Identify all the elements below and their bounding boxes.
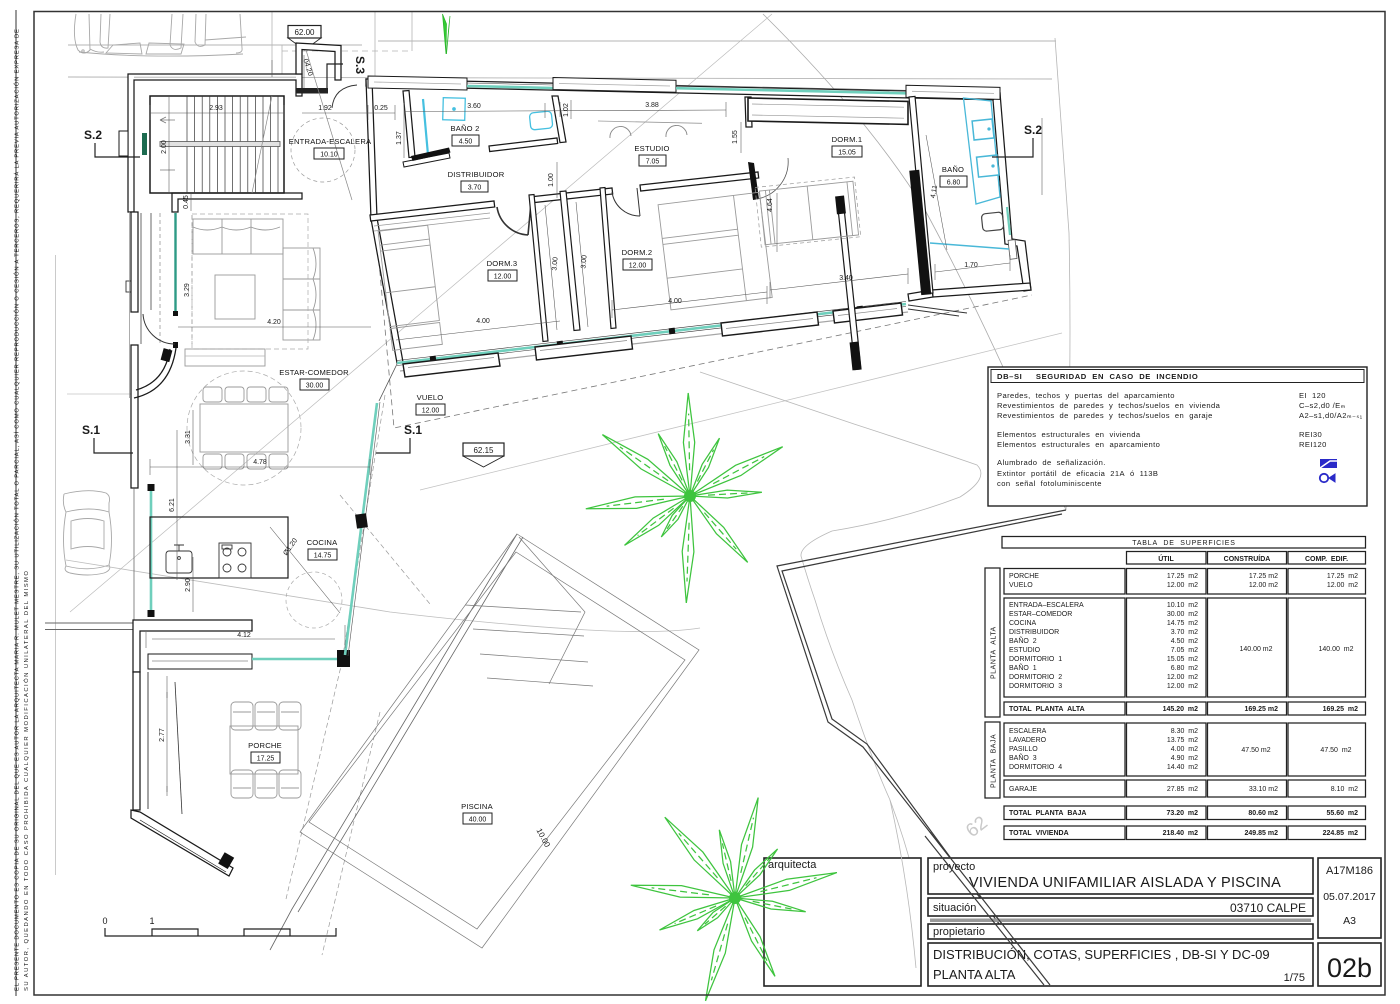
svg-text:ENTRADA–ESCALERA: ENTRADA–ESCALERA [1009,602,1084,609]
svg-text:A2–s1,d0/A2ₘ₋ₛ₁: A2–s1,d0/A2ₘ₋ₛ₁ [1299,411,1363,420]
svg-text:14.75 m2: 14.75 m2 [1167,620,1198,627]
svg-text:3.00: 3.00 [580,255,588,269]
svg-text:S.1: S.1 [404,423,422,437]
svg-text:VIVIENDA UNIFAMILIAR AISLADA Y: VIVIENDA UNIFAMILIAR AISLADA Y PISCINA [969,875,1281,891]
svg-text:1.92: 1.92 [318,105,332,112]
svg-text:17.25 m2: 17.25 m2 [1249,573,1278,580]
svg-text:0.25: 0.25 [374,105,388,112]
svg-text:169.25 m2: 169.25 m2 [1245,706,1279,713]
svg-text:140.00 m2: 140.00 m2 [1318,646,1353,653]
svg-text:COCINA: COCINA [1009,620,1037,627]
svg-text:218.40 m2: 218.40 m2 [1163,830,1199,837]
svg-text:30.00: 30.00 [306,383,324,390]
svg-text:03710 CALPE: 03710 CALPE [1230,901,1306,915]
svg-text:arquitecta: arquitecta [768,859,817,871]
svg-text:17.25 m2: 17.25 m2 [1167,573,1198,580]
svg-text:2.77: 2.77 [159,728,166,742]
svg-text:1.70: 1.70 [964,262,978,269]
svg-text:12.00 m2: 12.00 m2 [1167,582,1198,589]
svg-text:DORM.2: DORM.2 [622,248,653,257]
svg-text:Elementos estructurales en: Elementos estructurales en vivienda [997,430,1141,439]
svg-text:BAÑO 2: BAÑO 2 [450,124,479,133]
svg-text:CONSTRUÍDA: CONSTRUÍDA [1224,554,1271,563]
svg-text:80.60 m2: 80.60 m2 [1248,810,1278,817]
svg-text:6.21: 6.21 [169,498,176,512]
svg-text:4.00 m2: 4.00 m2 [1171,746,1198,753]
svg-text:10.10: 10.10 [320,152,338,159]
svg-text:GARAJE: GARAJE [1009,786,1037,793]
svg-text:PLANTA ALTA: PLANTA ALTA [933,967,1016,982]
svg-text:EL PRESENTE DOCUMENTO ES COPIA: EL PRESENTE DOCUMENTO ES COPIA DE SU ORI… [14,29,21,991]
svg-text:situación: situación [933,902,976,914]
svg-text:EI 120: EI 120 [1299,391,1326,400]
svg-text:S.3: S.3 [353,56,367,74]
svg-text:12.00 m2: 12.00 m2 [1249,582,1278,589]
svg-text:TOTAL VIVIENDA: TOTAL VIVIENDA [1009,830,1069,837]
svg-text:27.85 m2: 27.85 m2 [1167,786,1198,793]
svg-text:DORMITORIO 1: DORMITORIO 1 [1009,656,1062,663]
svg-text:15.05 m2: 15.05 m2 [1167,656,1198,663]
svg-text:55.60 m2: 55.60 m2 [1326,810,1358,817]
svg-text:05.07.2017: 05.07.2017 [1323,891,1376,903]
svg-text:TABLA DE SUPERFICIES: TABLA DE SUPERFICIES [1132,540,1235,547]
svg-text:30.00 m2: 30.00 m2 [1167,611,1198,618]
svg-text:15.05: 15.05 [838,150,856,157]
svg-text:0: 0 [102,916,107,926]
svg-text:COMP. EDIF.: COMP. EDIF. [1305,556,1348,563]
svg-text:BAÑO 2: BAÑO 2 [1009,636,1037,645]
svg-text:17.25: 17.25 [257,756,275,763]
svg-text:Elementos estructurales en: Elementos estructurales en aparcamiento [997,440,1160,449]
svg-text:3.29: 3.29 [184,283,191,297]
svg-text:ESCALERA: ESCALERA [1009,728,1047,735]
svg-text:REI120: REI120 [1299,440,1327,449]
svg-text:3.70 m2: 3.70 m2 [1171,629,1198,636]
svg-text:Revestimientos de paredes y: Revestimientos de paredes y techos/suelo… [997,411,1213,420]
svg-text:3.70: 3.70 [468,185,482,192]
svg-text:62.15: 62.15 [473,446,494,455]
svg-text:A17M186: A17M186 [1326,865,1373,877]
svg-text:2.93: 2.93 [209,105,223,112]
svg-text:62.00: 62.00 [294,28,315,37]
svg-text:1.37: 1.37 [396,131,403,145]
svg-text:LAVADERO: LAVADERO [1009,737,1047,744]
svg-text:12.00: 12.00 [422,408,440,415]
svg-text:con señal fotoluminiscente: con señal fotoluminiscente [997,479,1102,488]
svg-text:3.40: 3.40 [839,275,853,282]
svg-text:BAÑO: BAÑO [942,165,964,174]
svg-text:DORM.1: DORM.1 [832,135,863,144]
svg-text:S.1: S.1 [82,423,100,437]
svg-text:ESTUDIO: ESTUDIO [1009,647,1041,654]
svg-text:12.00 m2: 12.00 m2 [1327,582,1358,589]
svg-text:DORMITORIO 3: DORMITORIO 3 [1009,683,1062,690]
svg-text:73.20 m2: 73.20 m2 [1166,810,1198,817]
svg-text:6.80: 6.80 [947,180,961,187]
svg-text:13.75 m2: 13.75 m2 [1167,737,1198,744]
svg-text:2.90: 2.90 [185,578,192,592]
svg-text:DISTRIBUIDOR: DISTRIBUIDOR [1009,629,1059,636]
svg-text:DISTRIBUCIÓN, COTAS, SUPERFICI: DISTRIBUCIÓN, COTAS, SUPERFICIES , DB-SI… [933,947,1270,962]
svg-text:VUELO: VUELO [417,393,444,402]
svg-text:3.00: 3.00 [551,257,559,271]
svg-text:propietario: propietario [933,926,985,938]
svg-text:4.90 m2: 4.90 m2 [1171,755,1198,762]
svg-text:S.2: S.2 [1024,123,1042,137]
svg-text:7.05: 7.05 [646,159,660,166]
svg-text:Revestimientos de paredes y: Revestimientos de paredes y techos/suelo… [997,401,1221,410]
svg-text:1.02: 1.02 [563,103,570,117]
svg-text:1.55: 1.55 [732,130,739,144]
svg-text:COCINA: COCINA [307,538,338,547]
svg-text:A3: A3 [1343,915,1356,927]
svg-text:REI30: REI30 [1299,430,1322,439]
svg-text:DORMITORIO 2: DORMITORIO 2 [1009,674,1062,681]
svg-text:3.88: 3.88 [645,102,659,109]
svg-text:PASILLO: PASILLO [1009,746,1038,753]
svg-text:DISTRIBUIDOR: DISTRIBUIDOR [448,170,505,179]
svg-text:17.25 m2: 17.25 m2 [1327,573,1358,580]
svg-text:PLANTA BAJA: PLANTA BAJA [991,734,998,788]
svg-text:1: 1 [149,916,154,926]
svg-text:169.25 m2: 169.25 m2 [1323,706,1359,713]
svg-text:Extintor portátil de eficac: Extintor portátil de eficacia 21A ó 113B [997,469,1158,478]
svg-text:4.50 m2: 4.50 m2 [1171,638,1198,645]
svg-text:8.10 m2: 8.10 m2 [1331,786,1358,793]
svg-text:14.40 m2: 14.40 m2 [1167,764,1198,771]
svg-text:3.60: 3.60 [467,103,481,110]
svg-text:47.50 m2: 47.50 m2 [1241,747,1270,754]
svg-text:4.20: 4.20 [267,319,281,326]
svg-text:4.12: 4.12 [237,632,251,639]
svg-text:Alumbrado de señalización.: Alumbrado de señalización. [997,458,1106,467]
svg-text:VUELO: VUELO [1009,582,1033,589]
svg-text:10.10 m2: 10.10 m2 [1167,602,1198,609]
svg-text:TOTAL PLANTA ALTA: TOTAL PLANTA ALTA [1009,706,1085,713]
svg-text:12.00: 12.00 [494,274,512,281]
svg-text:02b: 02b [1327,953,1372,983]
svg-text:ENTRADA-ESCALERA: ENTRADA-ESCALERA [289,137,372,146]
svg-text:PORCHE: PORCHE [1009,573,1039,580]
svg-text:SU AUTOR, QUEDANDO EN TODO CAS: SU AUTOR, QUEDANDO EN TODO CASO PROHIBID… [23,571,30,991]
svg-text:ESTUDIO: ESTUDIO [634,144,669,153]
svg-text:12.00 m2: 12.00 m2 [1167,674,1198,681]
svg-text:12.00: 12.00 [629,263,647,270]
svg-text:ESTAR–COMEDOR: ESTAR–COMEDOR [1009,611,1072,618]
svg-text:C–s2,d0 /Eₘ: C–s2,d0 /Eₘ [1299,401,1346,410]
svg-text:PISCINA: PISCINA [461,802,494,811]
svg-text:47.50 m2: 47.50 m2 [1320,747,1351,754]
svg-text:Paredes, techos y puertas: Paredes, techos y puertas del aparcamien… [997,391,1175,400]
svg-text:1/75: 1/75 [1284,972,1305,984]
svg-text:249.85 m2: 249.85 m2 [1245,830,1279,837]
svg-text:BAÑO 1: BAÑO 1 [1009,663,1037,672]
svg-text:4.00: 4.00 [476,318,490,325]
svg-text:DORMITORIO 4: DORMITORIO 4 [1009,764,1062,771]
svg-text:ÚTIL: ÚTIL [1158,554,1174,563]
svg-text:4.64: 4.64 [767,198,774,212]
svg-text:7.05 m2: 7.05 m2 [1171,647,1198,654]
svg-text:4.50: 4.50 [459,139,473,146]
svg-text:4.78: 4.78 [253,459,267,466]
svg-text:3.31: 3.31 [185,430,192,444]
svg-text:14.75: 14.75 [314,553,332,560]
svg-text:8.30 m2: 8.30 m2 [1171,728,1198,735]
svg-text:140.00 m2: 140.00 m2 [1239,646,1272,653]
svg-text:DB–SI SEGURIDAD EN CASO: DB–SI SEGURIDAD EN CASO DE INCENDIO [997,372,1198,381]
svg-text:ESTAR-COMEDOR: ESTAR-COMEDOR [279,368,349,377]
svg-text:0.45: 0.45 [183,195,190,209]
svg-text:PLANTA ALTA: PLANTA ALTA [991,626,998,679]
svg-text:145.20 m2: 145.20 m2 [1163,706,1199,713]
svg-text:DORM.3: DORM.3 [487,259,518,268]
svg-text:PORCHE: PORCHE [248,741,282,750]
svg-text:33.10 m2: 33.10 m2 [1249,786,1278,793]
svg-text:6.80 m2: 6.80 m2 [1171,665,1198,672]
svg-text:4.00: 4.00 [668,298,682,305]
svg-text:40.00: 40.00 [469,817,487,824]
svg-text:1.00: 1.00 [548,173,555,187]
svg-text:BAÑO 3: BAÑO 3 [1009,753,1037,762]
svg-text:224.85 m2: 224.85 m2 [1323,830,1359,837]
svg-text:2.00: 2.00 [161,140,168,154]
svg-text:S.2: S.2 [84,128,102,142]
svg-text:12.00 m2: 12.00 m2 [1167,683,1198,690]
svg-text:TOTAL PLANTA BAJA: TOTAL PLANTA BAJA [1009,810,1086,817]
